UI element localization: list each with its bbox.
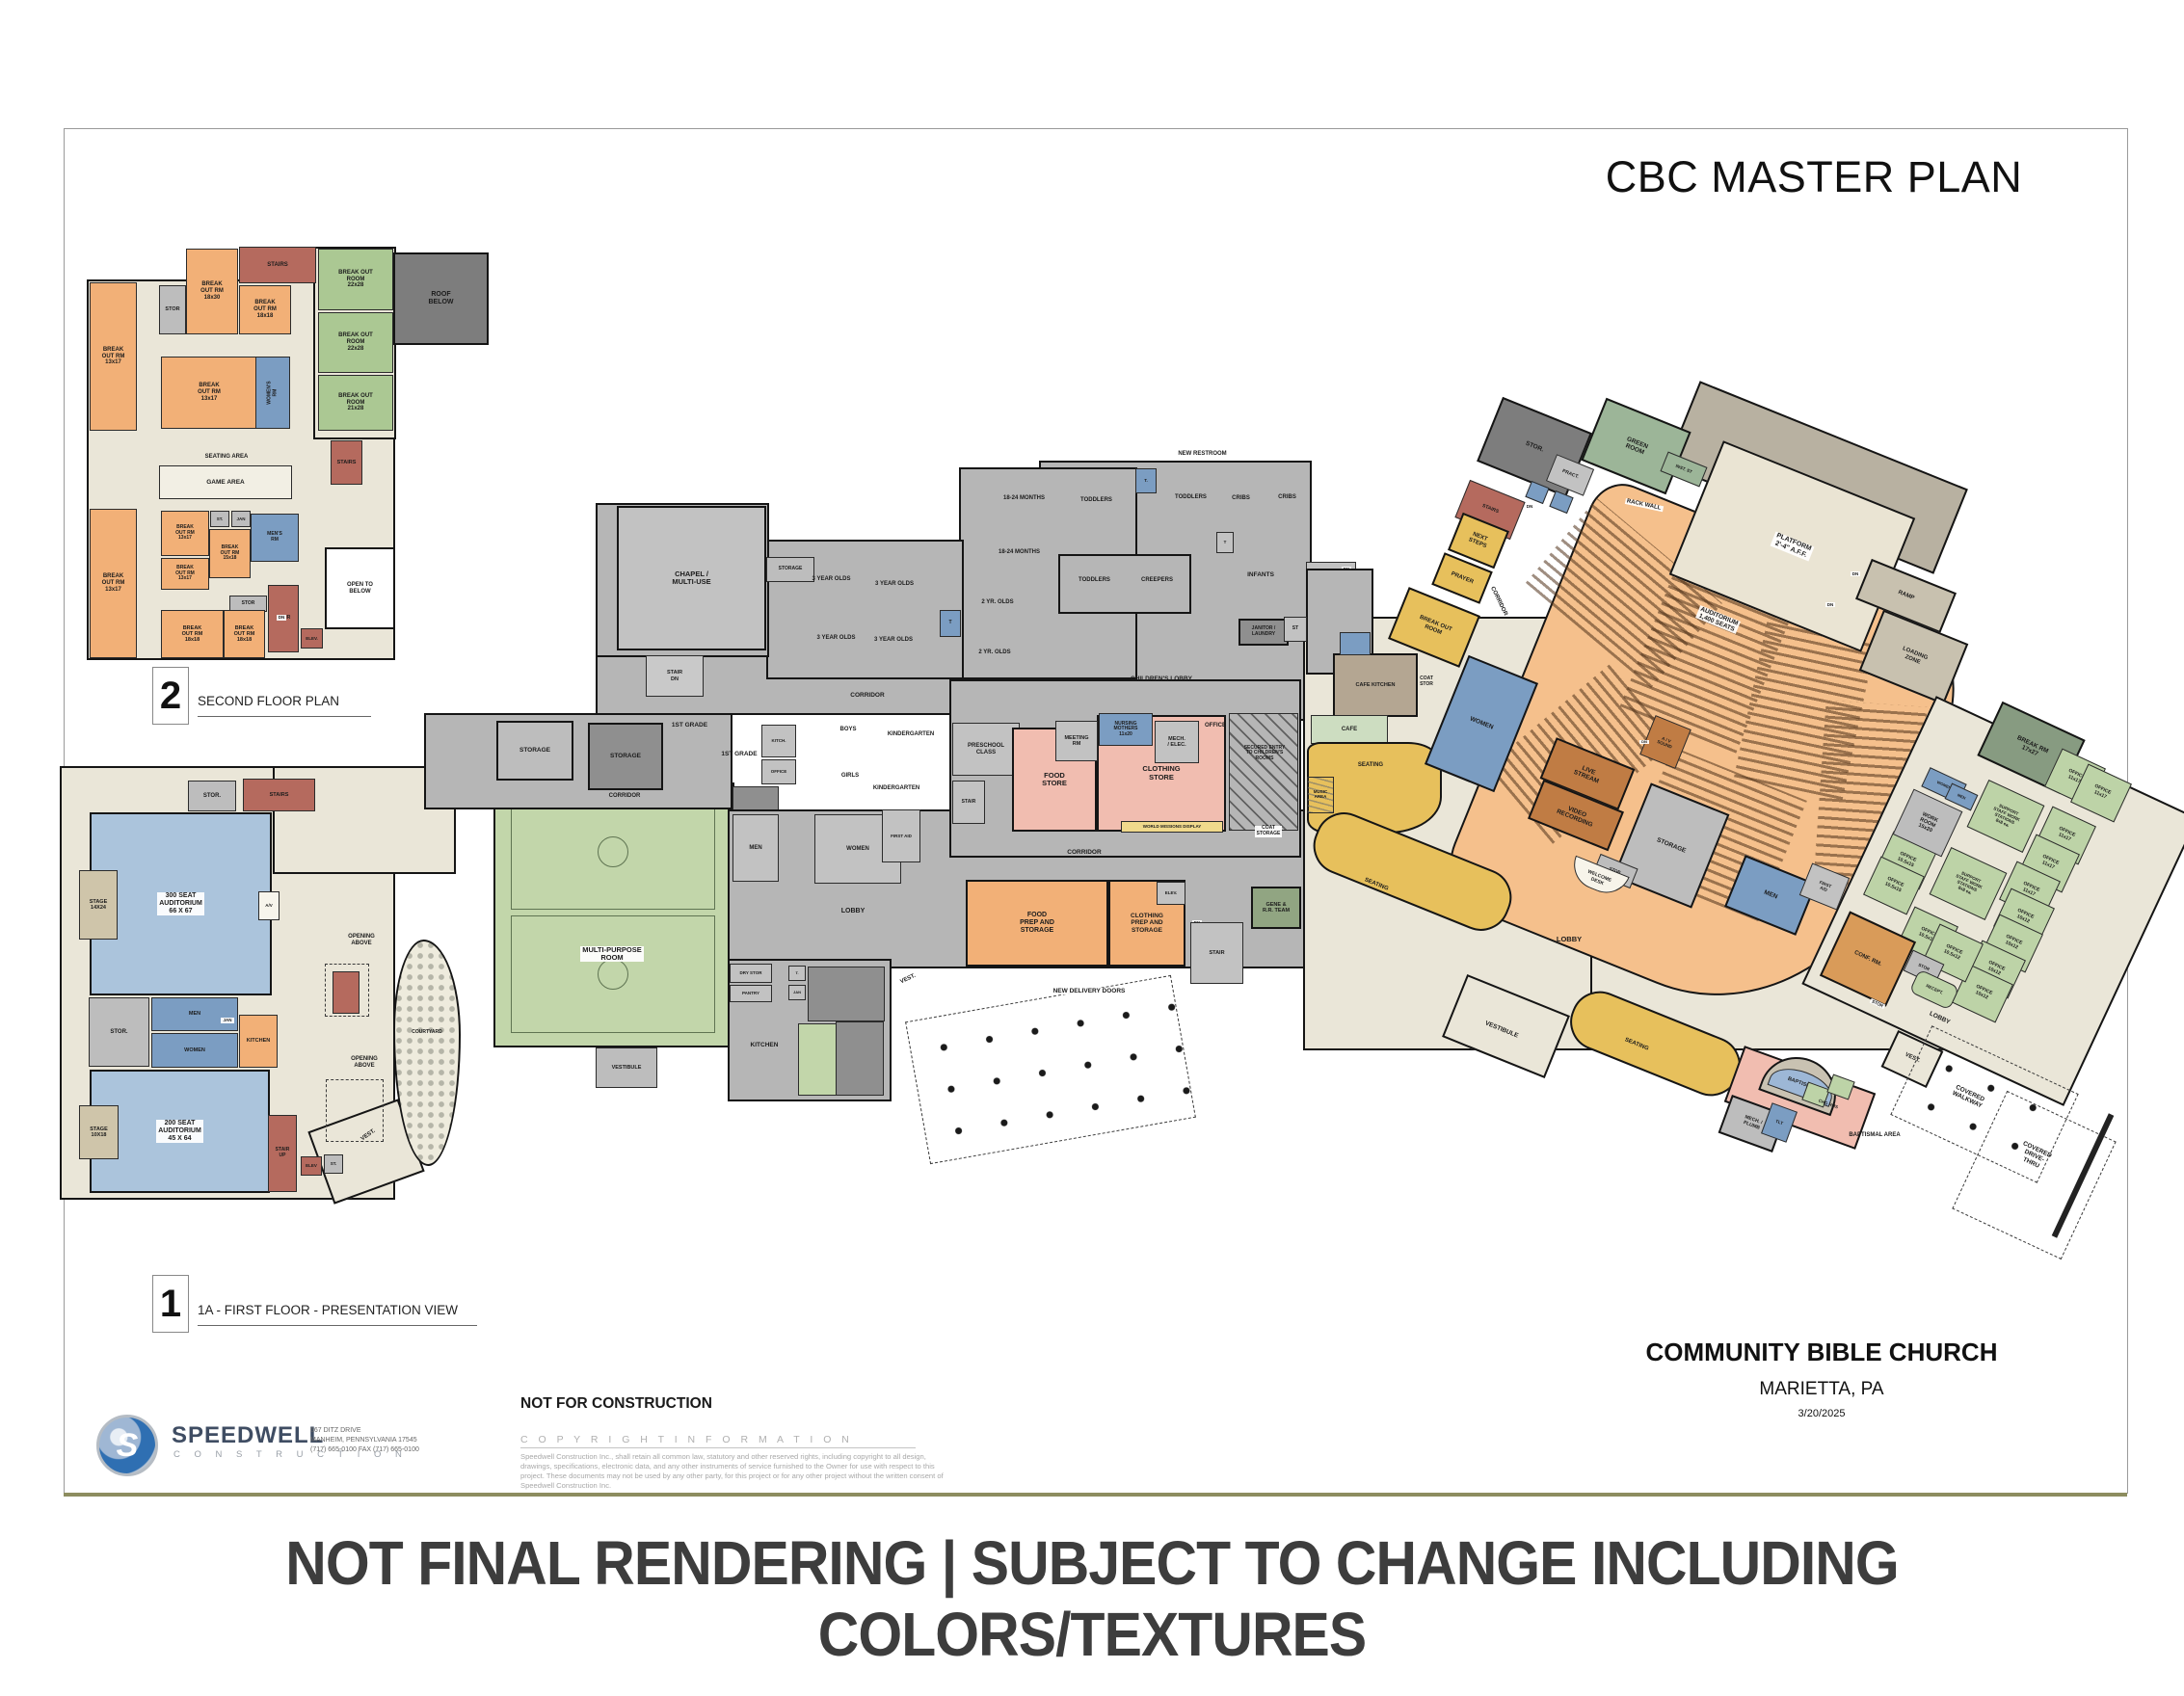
room-label: BREAK OUT RM 18x18: [253, 300, 277, 319]
room-stair: STAIR: [1190, 922, 1243, 984]
room-label: COVERED DRIVE- THRU: [2015, 1140, 2052, 1172]
room-label: BREAK OUT RM 13x17: [102, 573, 125, 593]
room-label: KITCH.: [772, 738, 786, 743]
room-toddlers: TODDLERS: [1159, 491, 1222, 504]
room-label: BAPTISMAL AREA: [1849, 1132, 1900, 1139]
room-break: BREAK OUT RM 13x17: [161, 357, 257, 429]
room-dn: DN: [1521, 501, 1538, 512]
room-label: OFFICE 11x17: [2038, 855, 2059, 872]
room-label: STORAGE: [519, 747, 550, 754]
room-dn: DN: [272, 612, 291, 623]
plan2-caption: SECOND FLOOR PLAN: [198, 694, 371, 717]
room-label: BOYS: [839, 727, 856, 733]
room-label: ELEV.: [306, 636, 318, 641]
room-label: 3 YEAR OLDS: [817, 635, 856, 642]
room-cribs: CRIBS: [1219, 492, 1263, 505]
room-st: ST: [1284, 617, 1307, 642]
speedwell-logo-icon: S: [96, 1415, 158, 1476]
plan-date: 3/20/2025: [1619, 1408, 2024, 1419]
room-stair: STAIR UP: [268, 1115, 297, 1192]
room-label: VEST.: [899, 972, 917, 985]
room-label: 1ST GRADE: [672, 722, 707, 729]
room-label: 3 YEAR OLDS: [874, 637, 913, 644]
room-label: NEW DELIVERY DOORS: [1052, 988, 1128, 994]
room-label: DN: [277, 615, 287, 620]
room-break: BREAK OUT RM 15x18: [209, 529, 251, 578]
room-label: STAIR: [1209, 950, 1224, 956]
room-label: MEN'S RM: [267, 532, 282, 543]
room-label: CLOTHING PREP AND STORAGE: [1131, 913, 1163, 934]
copyright-heading: C O P Y R I G H T I N F O R M A T I O N: [520, 1434, 916, 1448]
room-label: OPENING ABOVE: [351, 1056, 378, 1069]
room-break: BREAK OUT RM 18x18: [224, 610, 265, 658]
room-3-year-olds: 3 YEAR OLDS: [856, 577, 933, 591]
room-label: JAN: [221, 1018, 233, 1022]
room-dn: DN: [1637, 737, 1652, 747]
room-label: MEN: [749, 845, 761, 852]
room-new-delivery-doors: NEW DELIVERY DOORS: [1022, 985, 1157, 997]
plan1-caption: 1A - FIRST FLOOR - PRESENTATION VIEW: [198, 1303, 477, 1326]
room-2-yr-olds: 2 YR. OLDS: [959, 596, 1036, 609]
room-label: LOBBY: [841, 908, 866, 915]
room-label: STAIRS: [1481, 504, 1500, 516]
room-label: ST.: [217, 517, 224, 521]
room-label: INST. ST: [1675, 464, 1693, 474]
room-label: T.: [1144, 478, 1148, 483]
room-label: WORK ROOM 15x20: [1916, 811, 1939, 835]
plan1-number-box: 1: [152, 1275, 189, 1333]
room-label: BREAK OUT RM 13x17: [175, 525, 195, 542]
room-stor: STOR: [159, 285, 186, 334]
room-label: CORRIDOR: [850, 692, 884, 699]
room-break: BREAK OUT RM 13x17: [161, 558, 209, 590]
room-label: BREAK OUT RM 15x18: [221, 545, 240, 562]
room-label: BREAK OUT ROOM: [1416, 615, 1452, 640]
room-gene-: GENE & R.R. TEAM: [1251, 887, 1301, 929]
room-label: SEATING: [1358, 762, 1383, 769]
room-break-out: BREAK OUT ROOM 22x28: [318, 312, 393, 373]
copyright-body: Speedwell Construction Inc., shall retai…: [520, 1452, 954, 1490]
room-janitor-: JANITOR / LAUNDRY: [1238, 619, 1289, 646]
room-seating: SEATING: [1342, 759, 1399, 772]
room-break: BREAK OUT RM 13x17: [161, 511, 209, 556]
room-label: NEXT STEPS: [1467, 531, 1489, 550]
room-label: STOR: [1869, 998, 1885, 1010]
room-toddlers: TODDLERS: [1063, 574, 1126, 587]
room-label: FOOD STORE: [1042, 772, 1067, 788]
room-label: SEATING AREA: [205, 454, 249, 461]
room-t: T: [1216, 532, 1234, 553]
room-label: OFFICE 10x12: [1972, 985, 1992, 1002]
room-label: CREEPERS: [1141, 577, 1173, 584]
room-label: JAN: [236, 517, 245, 521]
room-women-s: WOMEN'S RM: [255, 357, 290, 429]
cafe-kitchen: CAFE KITCHEN: [1333, 653, 1418, 717]
room-elev: ELEV: [301, 1156, 322, 1176]
room-dn: DN: [1847, 569, 1864, 579]
room-label: BREAK OUT RM 13x17: [175, 566, 195, 582]
not-for-construction-note: NOT FOR CONSTRUCTION: [520, 1395, 964, 1413]
room-women: WOMEN: [151, 1033, 238, 1068]
room-secured-entry: SECURED ENTRY TO CHILDREN'S ROOMS: [1232, 734, 1297, 773]
room-label: WOMEN'S RM: [267, 381, 278, 404]
firm-name: SPEEDWELL: [172, 1422, 324, 1449]
room-label: CRIBS: [1278, 494, 1296, 501]
room-label: NEW RESTROOM: [1178, 451, 1226, 458]
room-3-year-olds: 3 YEAR OLDS: [853, 633, 934, 647]
room-baptismal-area: BAPTISMAL AREA: [1822, 1129, 1928, 1141]
room-label: CHAPEL / MULTI-USE: [672, 570, 710, 587]
room-label: CAFE: [1342, 727, 1357, 733]
room-label: STAIRS: [270, 792, 289, 798]
room-label: CORRIDOR: [1067, 849, 1101, 856]
room-kitch-: KITCH.: [761, 725, 796, 757]
room-lobby: LOBBY: [819, 904, 887, 918]
room-label: LOADING ZONE: [1899, 647, 1929, 669]
room-opening: OPENING ABOVE: [333, 927, 390, 954]
room-label: MULTI-PURPOSE ROOM: [580, 946, 644, 963]
room-stor-: STOR.: [89, 997, 149, 1067]
room-label: OFFICE 10x12: [2002, 935, 2022, 952]
room-label: T: [948, 621, 951, 626]
room-chapel-: CHAPEL / MULTI-USE: [617, 506, 766, 650]
room-label: MEN: [1957, 793, 1966, 801]
room-new-restroom: NEW RESTROOM: [1152, 448, 1253, 460]
room-label: RAMP: [1897, 590, 1915, 602]
plan2-number-box: 2: [152, 667, 189, 725]
room-label: T: [1224, 540, 1227, 544]
room-label: PANTRY: [742, 991, 759, 995]
room-label: STORAGE: [610, 753, 641, 759]
room-label: GAME AREA: [206, 479, 244, 486]
room-label: STORAGE: [779, 567, 803, 572]
room-label: CORRIDOR: [1489, 586, 1508, 617]
room-label: ST.: [331, 1161, 337, 1166]
room-label: WORLD MISSIONS DISPLAY: [1143, 824, 1202, 829]
room-office: OFFICE: [761, 759, 796, 784]
room-label: BREAK OUT RM 13x17: [198, 383, 221, 402]
room-music: MUSIC AREA: [1303, 784, 1338, 804]
room-label: STAGE 14X24: [90, 899, 108, 911]
room-label: COURTYARD: [412, 1030, 441, 1036]
room-label: OFFICE 11x17: [2055, 827, 2075, 844]
room-storage: STORAGE: [588, 723, 663, 790]
opening-stair: [333, 971, 360, 1014]
room-break: BREAK OUT RM 18x30: [186, 249, 238, 334]
room-label: SUPPORT STAFF WORK STATIONS 8x8 ea.: [1988, 802, 2022, 832]
room-label: SECURED ENTRY TO CHILDREN'S ROOMS: [1244, 746, 1286, 762]
room-stor-: STOR.: [188, 781, 236, 811]
room-label: MECH. / PLUMB: [1742, 1116, 1763, 1132]
room-men-s: MEN'S RM: [251, 514, 299, 562]
room-label: STORAGE: [1656, 836, 1687, 855]
room-stair: STAIR DN: [646, 655, 704, 697]
room-label: COAT STOR: [1420, 676, 1433, 687]
room-label: NURSING MOTHERS 11x20: [1114, 722, 1138, 738]
room-label: JANITOR / LAUNDRY: [1252, 626, 1276, 637]
room-a-v: A/V: [258, 891, 280, 920]
room-label: BREAK OUT RM 18x18: [182, 625, 203, 643]
room-vest-: VEST.: [887, 971, 929, 987]
room-label: SUPPORT STAFF WORK STATIONS 8x8 ea.: [1951, 869, 1984, 899]
room-coat: COAT STOR: [1409, 673, 1444, 692]
room-stairs: STAIRS: [243, 779, 315, 811]
room-label: BREAK OUT RM 18x18: [234, 625, 255, 643]
room-label: A / V SOUND: [1657, 734, 1675, 749]
title-block: COMMUNITY BIBLE CHURCH MARIETTA, PA 3/20…: [1619, 1338, 2024, 1419]
room-label: STAIR: [962, 800, 976, 806]
room-label: ELEV: [306, 1163, 317, 1168]
kitchen-block: [836, 1021, 884, 1096]
room-label: KITCHEN: [751, 1042, 779, 1048]
room-label: FOOD PREP AND STORAGE: [1020, 912, 1054, 934]
room-meeting: MEETING RM: [1055, 721, 1098, 761]
room-label: CAFE KITCHEN: [1356, 682, 1396, 688]
room-break: BREAK OUT RM 13x17: [90, 282, 137, 431]
room-label: CRIBS: [1232, 495, 1250, 502]
room-kindergarten: KINDERGARTEN: [848, 782, 945, 795]
room-label: DN: [1851, 571, 1861, 576]
restroom: [1549, 490, 1573, 514]
room-label: DN: [1825, 602, 1836, 607]
kitchen-pass: [798, 1023, 837, 1096]
room-label: BREAK OUT RM 13x17: [102, 347, 125, 366]
room-label: PRAYER: [1450, 570, 1474, 585]
room-roof: ROOF BELOW: [393, 252, 489, 345]
room-label: MEETING RM: [1064, 735, 1088, 747]
room-label: ELEV.: [1165, 890, 1178, 895]
room-t-: T.: [788, 966, 806, 981]
room-first-aid: FIRST AID: [882, 809, 920, 862]
court-circle: [598, 836, 628, 867]
room-label: BREAK OUT ROOM 22x28: [338, 332, 373, 352]
room-green: GREEN ROOM: [1581, 398, 1691, 494]
room-label: TLT: [1774, 1119, 1783, 1126]
room-label: PRESCHOOL CLASS: [968, 743, 1004, 755]
room-label: PRACT.: [1561, 469, 1580, 481]
room-pantry: PANTRY: [730, 985, 772, 1002]
room-label: STAIR UP: [276, 1148, 290, 1158]
room-label: CLOTHING STORE: [1142, 765, 1180, 782]
room-cribs: CRIBS: [1265, 491, 1309, 504]
room-label: KINDERGARTEN: [888, 731, 934, 738]
restroom: [1340, 632, 1371, 655]
room-label: FIRST AID: [1817, 880, 1832, 893]
room-label: STAIRS: [337, 460, 357, 465]
room-label: TODDLERS: [1080, 497, 1112, 504]
firm-address: 667 DITZ DRIVE MANHEIM, PENNSYLVANIA 175…: [310, 1426, 419, 1454]
room-label: GIRLS: [841, 773, 859, 780]
room-label: VIDEO RECORDING: [1556, 802, 1596, 829]
room-stage: STAGE 14X24: [79, 870, 118, 940]
room-preschool: PRESCHOOL CLASS: [952, 723, 1020, 776]
room-multi-purpose: MULTI-PURPOSE ROOM: [540, 940, 684, 968]
room-label: STOR.: [1524, 440, 1544, 454]
room-label: STOR.: [110, 1029, 127, 1036]
room-mech-: MECH. / ELEC.: [1155, 721, 1199, 763]
room-seating-area: SEATING AREA: [164, 449, 289, 464]
room-dn: DN: [1822, 599, 1839, 610]
room-food: FOOD PREP AND STORAGE: [966, 880, 1108, 967]
room-stair: STAIR: [952, 781, 985, 824]
room-label: FIRST AID: [891, 834, 912, 838]
room-label: KITCHEN: [247, 1038, 270, 1044]
room-kitchen: KITCHEN: [732, 1039, 796, 1052]
room-label: MUSIC AREA: [1314, 789, 1328, 799]
room-break: BREAK OUT RM 18x18: [161, 610, 224, 658]
stairs: STAIRS: [239, 247, 316, 283]
room-jan: JAN: [788, 985, 806, 1000]
room-break: BREAK OUT RM 13x17: [90, 509, 137, 658]
master-plan-sheet: { "sheet": { "title": "CBC MASTER PLAN",…: [0, 0, 2184, 1696]
room-label: INFANTS: [1247, 571, 1274, 578]
room-label: OFFICE 11x17: [2091, 784, 2111, 802]
room-kitchen: KITCHEN: [239, 1015, 278, 1068]
room-label: OPENING ABOVE: [348, 934, 375, 946]
room-lobby: LOBBY: [1540, 933, 1598, 946]
room-18-24-months: 18-24 MONTHS: [973, 545, 1065, 559]
room-label: OFFICE 10.5x15: [1883, 877, 1904, 894]
kitchen-block: [808, 967, 885, 1021]
room-label: OFFICE 10.5x12: [1942, 944, 1962, 962]
room-label: 18-24 MONTHS: [999, 549, 1040, 556]
room-label: DRY STOR: [740, 970, 762, 975]
room-label: 18-24 MONTHS: [1003, 495, 1045, 502]
firm-block: S SPEEDWELL C O N S T R U C T I O N 667 …: [96, 1409, 501, 1486]
room-label: OPEN TO BELOW: [347, 582, 373, 595]
room-label: KINDERGARTEN: [873, 785, 919, 792]
client-name: COMMUNITY BIBLE CHURCH: [1619, 1338, 2024, 1367]
room-label: COAT STORAGE: [1255, 826, 1283, 836]
room-children-s-lobby: CHILDREN'S LOBBY: [1104, 673, 1219, 685]
room-cafe: CAFE: [1311, 715, 1388, 744]
room-label: WOMEN: [846, 846, 869, 853]
room-corridor: CORRIDOR: [1046, 846, 1123, 859]
room-stairs: STAIRS: [331, 440, 362, 485]
room-label: VESTIBULE: [612, 1065, 642, 1071]
room-label: ST: [1292, 626, 1298, 632]
room-label: GREEN ROOM: [1623, 436, 1649, 457]
room-break-out: BREAK OUT ROOM 21x28: [318, 375, 393, 431]
room-jan: JAN: [217, 1014, 238, 1027]
room-label: DN: [1639, 740, 1649, 744]
disclaimer-banner: NOT FINAL RENDERING | SUBJECT TO CHANGE …: [88, 1527, 2097, 1670]
room-label: MECH. / ELEC.: [1167, 736, 1185, 748]
room-label: TODDLERS: [1079, 577, 1110, 584]
room-label: TODDLERS: [1175, 494, 1207, 501]
room-corridor: CORRIDOR: [586, 790, 663, 803]
room-label: CORRIDOR: [609, 793, 641, 800]
room-men: MEN: [732, 814, 779, 882]
room-label: BREAK OUT ROOM 22x28: [338, 270, 373, 289]
room-creepers: CREEPERS: [1126, 574, 1188, 587]
room-18-24-months: 18-24 MONTHS: [978, 491, 1070, 505]
room-open-to: OPEN TO BELOW: [325, 547, 395, 629]
new-restroom: T.: [1135, 468, 1157, 493]
room-infants: INFANTS: [1232, 569, 1290, 581]
room-label: BREAK OUT ROOM 21x28: [338, 393, 373, 412]
room-label: OFFICE: [1205, 723, 1226, 729]
room-break: BREAK OUT RM 18x18: [239, 285, 291, 334]
room-dry-stor: DRY STOR: [730, 964, 772, 983]
room-label: GENE & R.R. TEAM: [1263, 902, 1290, 914]
room-label: MEN: [189, 1011, 200, 1017]
patio: [905, 975, 1196, 1164]
room-label: WELCOME DESK: [1585, 870, 1611, 889]
room-label: CHILDREN'S LOBBY: [1131, 676, 1192, 682]
room-label: CONF. RM.: [1853, 949, 1883, 967]
room-world-missions-display: WORLD MISSIONS DISPLAY: [1121, 821, 1223, 833]
room-label: STOR: [242, 601, 255, 607]
room-label: 1ST GRADE: [721, 751, 757, 757]
room-label: BREAK OUT RM 18x30: [200, 281, 224, 301]
room-storage: STORAGE: [496, 721, 573, 781]
room-st-: ST.: [210, 511, 229, 527]
plan2-number: 2: [160, 675, 181, 718]
room-label: 200 SEAT AUDITORIUM 45 X 64: [156, 1120, 203, 1142]
room-label: JAN: [793, 991, 801, 994]
room-label: 2 YR. OLDS: [981, 599, 1013, 606]
room-courtyard: COURTYARD: [395, 1027, 459, 1039]
room-label: 2 YR. OLDS: [978, 649, 1010, 656]
room-t: T: [940, 610, 961, 637]
room-coat: COAT STORAGE: [1245, 821, 1292, 842]
room-label: MEN: [1763, 889, 1778, 901]
room-label: STAGE 10X18: [90, 1126, 108, 1138]
room-label: PLATFORM 2'-4" A.F.F.: [1771, 532, 1814, 561]
room-label: 3 YEAR OLDS: [812, 576, 851, 583]
room-label: OFFICE: [771, 769, 787, 774]
room-label: STOR: [165, 306, 179, 312]
stamp-block: NOT FOR CONSTRUCTION C O P Y R I G H T I…: [520, 1395, 964, 1490]
room-label: DN: [1525, 504, 1535, 509]
room-label: 3 YEAR OLDS: [875, 581, 914, 588]
room-label: A/V: [265, 903, 273, 908]
room-label: RECEPT.: [1925, 984, 1943, 996]
room-label: 300 SEAT AUDITORIUM 66 X 67: [157, 892, 204, 914]
room-label: LIVE STREAM: [1573, 762, 1603, 785]
room-nursing: NURSING MOTHERS 11x20: [1099, 713, 1153, 746]
room-label: LOBBY: [1557, 936, 1582, 943]
room-label: WOMEN: [1469, 716, 1494, 731]
plan1-number: 1: [160, 1283, 181, 1326]
room-opening: OPENING ABOVE: [335, 1050, 393, 1075]
room-st-: ST.: [324, 1154, 343, 1174]
room-kindergarten: KINDERGARTEN: [863, 729, 959, 741]
client-location: MARIETTA, PA: [1619, 1379, 2024, 1400]
room-stage: STAGE 10X18: [79, 1105, 119, 1159]
room-vestibule: VESTIBULE: [596, 1047, 657, 1088]
room-label: STAIR DN: [667, 670, 682, 681]
room-jan: JAN: [231, 511, 251, 527]
opening-above: [326, 1079, 384, 1142]
room-label: WOMEN: [184, 1047, 205, 1053]
room-break-out: BREAK OUT ROOM 22x28: [318, 249, 393, 310]
room-label: STOR.: [203, 793, 221, 800]
room-1st-grade: 1ST GRADE: [653, 719, 726, 731]
room-elev-: ELEV.: [301, 628, 323, 649]
room-corridor: CORRIDOR: [829, 689, 906, 702]
room-game-area: GAME AREA: [159, 465, 292, 499]
room-label: BREAK RM 17x27: [2013, 734, 2050, 761]
room-label: T.: [795, 971, 798, 975]
room-toddlers: TODDLERS: [1065, 494, 1128, 507]
room-elev-: ELEV.: [1157, 882, 1185, 905]
room-2-yr-olds: 2 YR. OLDS: [956, 646, 1033, 659]
room-label: ROOF BELOW: [428, 291, 453, 306]
room-label: STAIRS: [267, 262, 288, 269]
